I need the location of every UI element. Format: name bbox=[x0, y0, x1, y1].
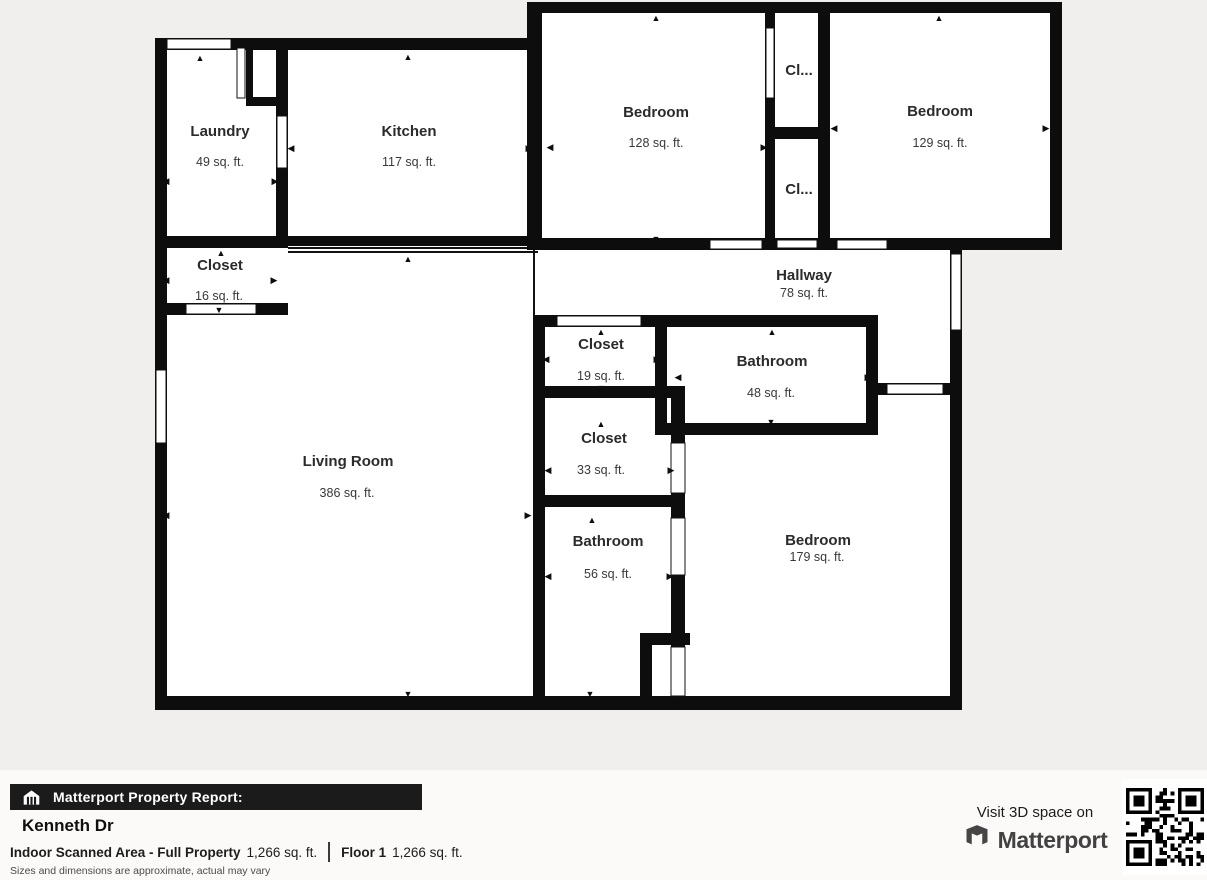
room-label-closet-top: Cl... bbox=[785, 62, 813, 79]
separator-rule bbox=[328, 842, 330, 862]
dimension-arrow-down-icon: ▼ bbox=[767, 417, 776, 427]
room-name: Closet bbox=[197, 257, 243, 274]
report-footer: Matterport Property Report: Kenneth Dr I… bbox=[0, 770, 1207, 880]
scanned-area-value: 1,266 sq. ft. bbox=[247, 845, 318, 860]
room-area: 33 sq. ft. bbox=[577, 463, 625, 477]
floor-base-topright bbox=[527, 2, 1062, 250]
room-area: 78 sq. ft. bbox=[780, 286, 828, 300]
dimension-arrow-down-icon: ▼ bbox=[586, 689, 595, 699]
living-room-window bbox=[156, 370, 166, 443]
dimension-arrow-right-icon: ▶ bbox=[271, 275, 278, 285]
dimension-arrow-right-icon: ▶ bbox=[272, 176, 279, 186]
room-label-bedroom-3: Bedroom 179 sq. ft. bbox=[785, 532, 851, 564]
room-name: Closet bbox=[581, 430, 627, 447]
dimension-arrow-right-icon: ▶ bbox=[865, 372, 872, 382]
dimension-arrow-right-icon: ▶ bbox=[526, 143, 533, 153]
dimension-arrow-left-icon: ◀ bbox=[288, 143, 295, 153]
dimension-arrow-left-icon: ◀ bbox=[545, 571, 552, 581]
room-name: Living Room bbox=[303, 453, 394, 470]
dimension-arrow-up-icon: ▲ bbox=[404, 52, 413, 62]
dimension-arrow-down-icon: ▼ bbox=[196, 235, 205, 245]
room-name: Laundry bbox=[190, 123, 250, 140]
dimension-arrow-down-icon: ▼ bbox=[404, 235, 413, 245]
scanned-area-label: Indoor Scanned Area - Full Property bbox=[10, 845, 241, 860]
closet-bottom-door bbox=[777, 240, 817, 248]
dimension-arrow-down-icon: ▼ bbox=[596, 496, 605, 506]
dimension-arrow-down-icon: ▼ bbox=[597, 383, 606, 393]
dimension-arrow-down-icon: ▼ bbox=[935, 238, 944, 248]
dimension-arrow-right-icon: ▶ bbox=[654, 354, 661, 364]
floorplan-report-page: Laundry 49 sq. ft. Kitchen 117 sq. ft. B… bbox=[0, 0, 1207, 880]
room-area: 128 sq. ft. bbox=[629, 136, 684, 150]
room-name: Hallway bbox=[776, 267, 833, 284]
dimension-arrow-up-icon: ▲ bbox=[597, 419, 606, 429]
dimension-arrow-right-icon: ▶ bbox=[668, 465, 675, 475]
bathroom56-door bbox=[671, 518, 685, 575]
open-boundary-line bbox=[288, 251, 538, 253]
room-area: 179 sq. ft. bbox=[790, 550, 845, 564]
dimension-arrow-right-icon: ▶ bbox=[525, 510, 532, 520]
report-info-row: Indoor Scanned Area - Full Property 1,26… bbox=[10, 842, 463, 862]
house-icon bbox=[23, 789, 40, 806]
room-name: Bedroom bbox=[623, 104, 689, 121]
property-name: Kenneth Dr bbox=[22, 816, 114, 836]
floor-label: Floor 1 bbox=[341, 845, 386, 860]
dimension-arrow-left-icon: ◀ bbox=[163, 510, 170, 520]
dimension-arrow-down-icon: ▼ bbox=[652, 234, 661, 244]
room-area: 49 sq. ft. bbox=[196, 155, 244, 169]
disclaimer: Sizes and dimensions are approximate, ac… bbox=[10, 865, 270, 877]
dimension-arrow-up-icon: ▲ bbox=[404, 254, 413, 264]
closet19-door bbox=[557, 316, 641, 326]
floorplan-canvas: Laundry 49 sq. ft. Kitchen 117 sq. ft. B… bbox=[0, 0, 1207, 775]
report-bar-label: Matterport Property Report: bbox=[53, 789, 243, 805]
closet-top-door bbox=[766, 28, 774, 98]
room-area: 117 sq. ft. bbox=[382, 155, 436, 169]
dimension-arrow-up-icon: ▲ bbox=[935, 13, 944, 23]
bedroom2-door bbox=[837, 240, 887, 249]
visit-3d-cta: Visit 3D space on Matterport bbox=[950, 804, 1120, 857]
dimension-arrow-left-icon: ◀ bbox=[163, 176, 170, 186]
entry-door bbox=[167, 39, 231, 49]
room-name: Closet bbox=[578, 336, 624, 353]
dimension-arrow-right-icon: ▶ bbox=[1043, 123, 1050, 133]
open-boundary-line bbox=[533, 250, 535, 315]
dimension-arrow-down-icon: ▼ bbox=[215, 305, 224, 315]
room-name: Bathroom bbox=[573, 533, 644, 550]
dimension-arrow-left-icon: ◀ bbox=[675, 372, 682, 382]
room-name: Cl... bbox=[785, 181, 813, 198]
room-label-closet-bottom: Cl... bbox=[785, 181, 813, 198]
dimension-arrow-up-icon: ▲ bbox=[652, 13, 661, 23]
qr-code bbox=[1122, 779, 1207, 875]
room-area: 56 sq. ft. bbox=[584, 567, 632, 581]
dimension-arrow-up-icon: ▲ bbox=[196, 53, 205, 63]
dimension-arrow-down-icon: ▼ bbox=[404, 689, 413, 699]
bedroom1-door bbox=[710, 240, 762, 249]
room-name: Bathroom bbox=[737, 353, 808, 370]
matterport-wordmark: Matterport bbox=[998, 827, 1108, 854]
room-area: 19 sq. ft. bbox=[577, 369, 625, 383]
dimension-arrow-up-icon: ▲ bbox=[768, 327, 777, 337]
open-boundary-line bbox=[288, 247, 538, 249]
dimension-arrow-up-icon: ▲ bbox=[217, 248, 226, 258]
room-name: Kitchen bbox=[381, 123, 436, 140]
room-area: 48 sq. ft. bbox=[747, 386, 795, 400]
dimension-arrow-left-icon: ◀ bbox=[543, 354, 550, 364]
dimension-arrow-left-icon: ◀ bbox=[545, 465, 552, 475]
visit-3d-text: Visit 3D space on bbox=[950, 804, 1120, 821]
dimension-arrow-up-icon: ▲ bbox=[588, 515, 597, 525]
hallway-bedroom3-door bbox=[887, 384, 943, 394]
dimension-arrow-right-icon: ▶ bbox=[667, 571, 674, 581]
door-leaf bbox=[237, 48, 245, 98]
laundry-kitchen-door bbox=[277, 116, 287, 168]
dimension-arrow-left-icon: ◀ bbox=[831, 123, 838, 133]
floor-value: 1,266 sq. ft. bbox=[392, 845, 463, 860]
room-name: Cl... bbox=[785, 62, 813, 79]
room-name: Bedroom bbox=[907, 103, 973, 120]
room-area: 16 sq. ft. bbox=[195, 289, 243, 303]
room-area: 129 sq. ft. bbox=[913, 136, 968, 150]
room-area: 386 sq. ft. bbox=[320, 486, 375, 500]
room-name: Bedroom bbox=[785, 532, 851, 549]
dimension-arrow-up-icon: ▲ bbox=[597, 327, 606, 337]
dimension-arrow-left-icon: ◀ bbox=[547, 142, 554, 152]
alcove-door bbox=[671, 647, 685, 696]
report-bar: Matterport Property Report: bbox=[10, 784, 422, 810]
matterport-logo-icon bbox=[963, 824, 991, 857]
hallway-window bbox=[951, 254, 961, 330]
dimension-arrow-left-icon: ◀ bbox=[163, 275, 170, 285]
room-label-hallway: Hallway 78 sq. ft. bbox=[776, 267, 833, 300]
dimension-arrow-right-icon: ▶ bbox=[761, 142, 768, 152]
